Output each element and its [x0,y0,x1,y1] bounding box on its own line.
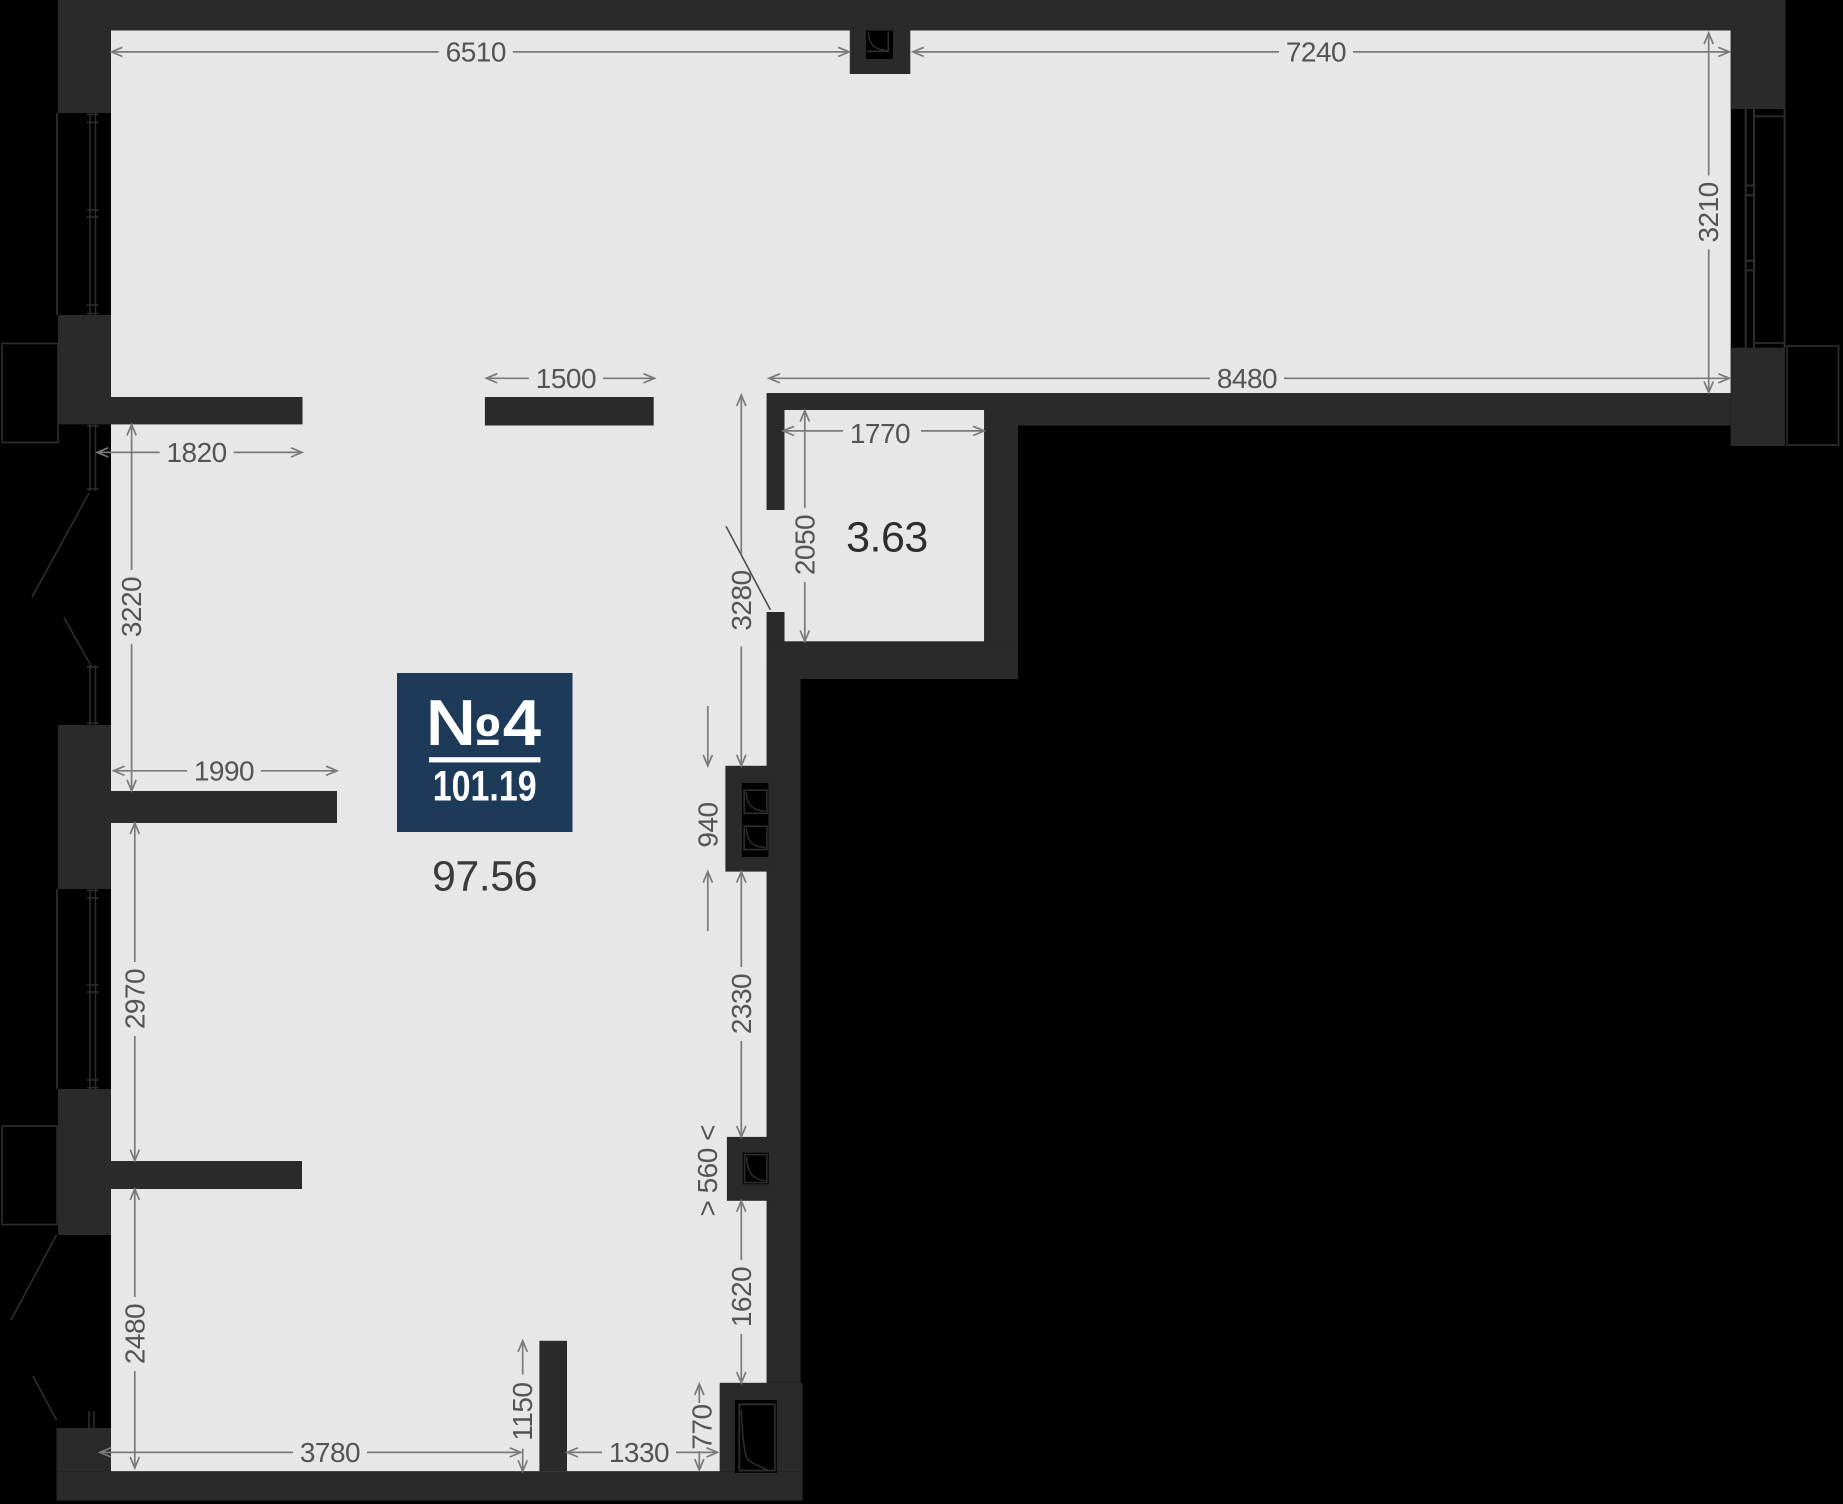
svg-text:3280: 3280 [726,570,757,630]
svg-text:3210: 3210 [1693,182,1724,242]
svg-text:97.56: 97.56 [432,853,537,901]
svg-text:1150: 1150 [507,1382,538,1440]
svg-text:3220: 3220 [116,577,147,637]
svg-text:101.19: 101.19 [433,763,537,811]
svg-text:№4: №4 [426,686,541,759]
svg-text:1770: 1770 [850,418,910,449]
svg-text:3780: 3780 [300,1437,360,1468]
svg-text:6510: 6510 [446,36,506,67]
svg-text:1620: 1620 [726,1267,757,1327]
svg-text:2050: 2050 [789,515,820,575]
svg-text:2480: 2480 [119,1304,150,1364]
svg-text:770: 770 [686,1404,717,1449]
svg-text:1330: 1330 [609,1437,669,1468]
svg-text:3.63: 3.63 [846,514,928,562]
svg-text:7240: 7240 [1286,36,1346,67]
svg-text:1820: 1820 [166,437,226,468]
svg-text:2330: 2330 [726,974,757,1034]
svg-text:1990: 1990 [194,755,254,786]
svg-text:2970: 2970 [119,969,150,1029]
svg-text:> 560 <: > 560 < [692,1125,723,1216]
svg-text:1500: 1500 [536,363,596,394]
svg-text:940: 940 [692,802,723,847]
svg-text:8480: 8480 [1217,363,1277,394]
